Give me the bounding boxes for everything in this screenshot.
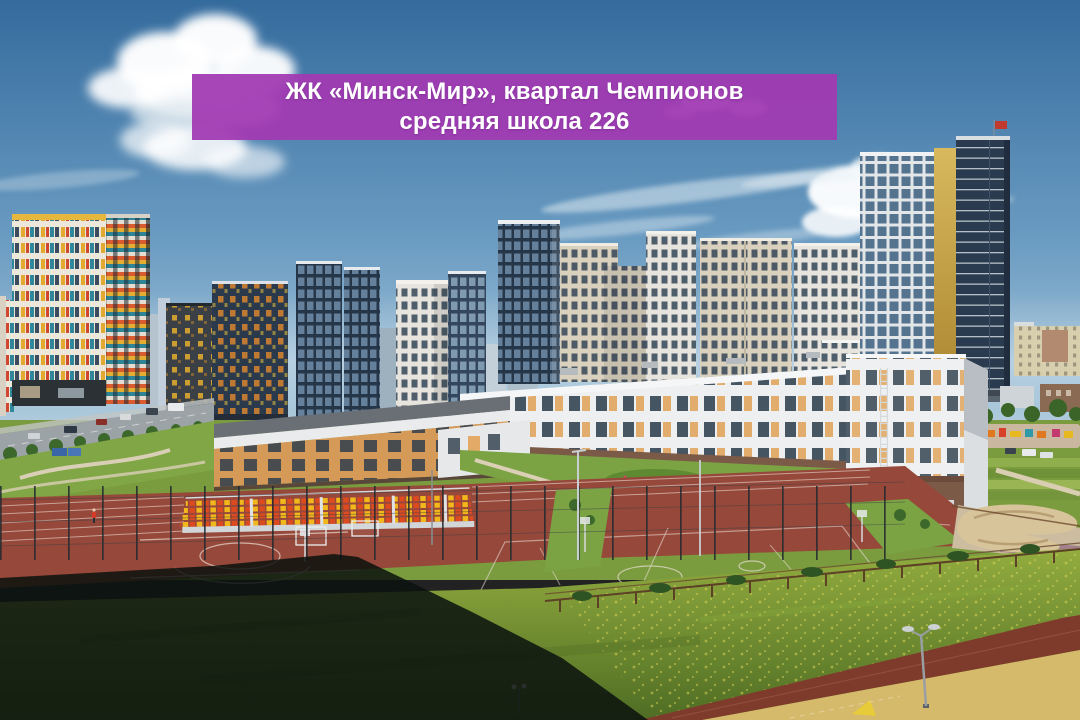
photo-screenshot: ЖК «Минск-Мир», квартал Чемпионов средня…	[0, 0, 1080, 720]
banner-line-1: ЖК «Минск-Мир», квартал Чемпионов	[192, 77, 837, 107]
banner-line-2: средняя школа 226	[192, 107, 837, 137]
distant-right-buildings	[1014, 322, 1080, 376]
info-banner: ЖК «Минск-Мир», квартал Чемпионов средня…	[192, 74, 837, 140]
